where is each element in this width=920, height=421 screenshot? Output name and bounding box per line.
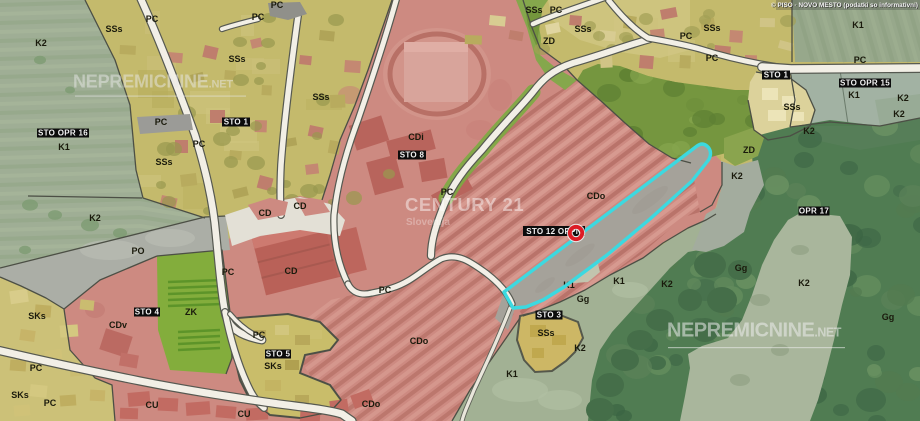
svg-text:K2: K2 (803, 126, 815, 136)
svg-text:ZD: ZD (543, 36, 555, 46)
svg-text:PC: PC (252, 12, 265, 22)
svg-text:ZK: ZK (185, 307, 197, 317)
svg-text:STO 8: STO 8 (400, 151, 425, 160)
svg-text:CD: CD (259, 208, 272, 218)
svg-text:PC: PC (155, 117, 168, 127)
svg-text:PC: PC (30, 363, 43, 373)
svg-text:PC: PC (550, 5, 563, 15)
svg-text:SSs: SSs (105, 24, 122, 34)
svg-text:SSs: SSs (574, 24, 591, 34)
svg-text:CDi: CDi (408, 132, 424, 142)
svg-text:STO 1: STO 1 (224, 118, 249, 127)
svg-text:ZD: ZD (743, 145, 755, 155)
svg-text:CD: CD (294, 201, 307, 211)
svg-text:Slovenija: Slovenija (406, 217, 450, 228)
svg-text:K2: K2 (798, 278, 810, 288)
svg-text:© PISO - NOVO MESTO (podatki s: © PISO - NOVO MESTO (podatki so informat… (771, 1, 918, 9)
svg-text:OPR 17: OPR 17 (799, 207, 830, 216)
svg-text:PC: PC (680, 31, 693, 41)
svg-text:CDv: CDv (109, 320, 127, 330)
svg-text:Gg: Gg (577, 294, 590, 304)
svg-text:PC: PC (44, 398, 57, 408)
svg-text:K1: K1 (848, 90, 860, 100)
svg-text:SSs: SSs (537, 328, 554, 338)
svg-text:K1: K1 (506, 369, 518, 379)
svg-text:PC: PC (379, 285, 392, 295)
svg-text:K1: K1 (852, 20, 864, 30)
svg-text:SSs: SSs (228, 54, 245, 64)
svg-text:K1: K1 (613, 276, 625, 286)
svg-text:SSs: SSs (525, 5, 542, 15)
svg-text:PC: PC (271, 0, 284, 10)
svg-text:STO OPR 15: STO OPR 15 (840, 79, 890, 88)
svg-text:STO 1: STO 1 (764, 71, 789, 80)
svg-text:SSs: SSs (783, 102, 800, 112)
svg-text:K2: K2 (89, 213, 101, 223)
svg-text:STO 5: STO 5 (266, 350, 291, 359)
svg-text:PC: PC (253, 330, 266, 340)
svg-text:SKs: SKs (28, 311, 46, 321)
svg-text:CU: CU (238, 409, 251, 419)
svg-text:K2: K2 (574, 343, 586, 353)
svg-text:PC: PC (222, 267, 235, 277)
svg-text:K2: K2 (35, 38, 47, 48)
svg-text:SSs: SSs (312, 92, 329, 102)
svg-text:Gg: Gg (735, 263, 748, 273)
svg-text:CU: CU (146, 400, 159, 410)
svg-text:SSs: SSs (155, 157, 172, 167)
svg-text:K1: K1 (58, 142, 70, 152)
svg-text:K2: K2 (897, 93, 909, 103)
svg-text:CENTURY 21: CENTURY 21 (405, 194, 524, 215)
svg-text:CD: CD (285, 266, 298, 276)
svg-text:STO OPR 16: STO OPR 16 (38, 129, 88, 138)
svg-text:CDo: CDo (410, 336, 429, 346)
svg-text:PC: PC (854, 55, 867, 65)
svg-text:Gg: Gg (882, 312, 895, 322)
svg-text:K2: K2 (731, 171, 743, 181)
svg-text:STO 3: STO 3 (537, 311, 562, 320)
svg-text:CDo: CDo (587, 191, 606, 201)
svg-text:PC: PC (706, 53, 719, 63)
svg-text:SKs: SKs (264, 361, 282, 371)
svg-text:SSs: SSs (703, 23, 720, 33)
svg-text:K2: K2 (661, 279, 673, 289)
svg-text:SKs: SKs (11, 390, 29, 400)
svg-text:STO 4: STO 4 (135, 308, 160, 317)
svg-text:PC: PC (146, 14, 159, 24)
svg-text:PO: PO (131, 246, 144, 256)
svg-text:K2: K2 (893, 109, 905, 119)
svg-text:CDo: CDo (362, 399, 381, 409)
svg-text:PC: PC (193, 139, 206, 149)
